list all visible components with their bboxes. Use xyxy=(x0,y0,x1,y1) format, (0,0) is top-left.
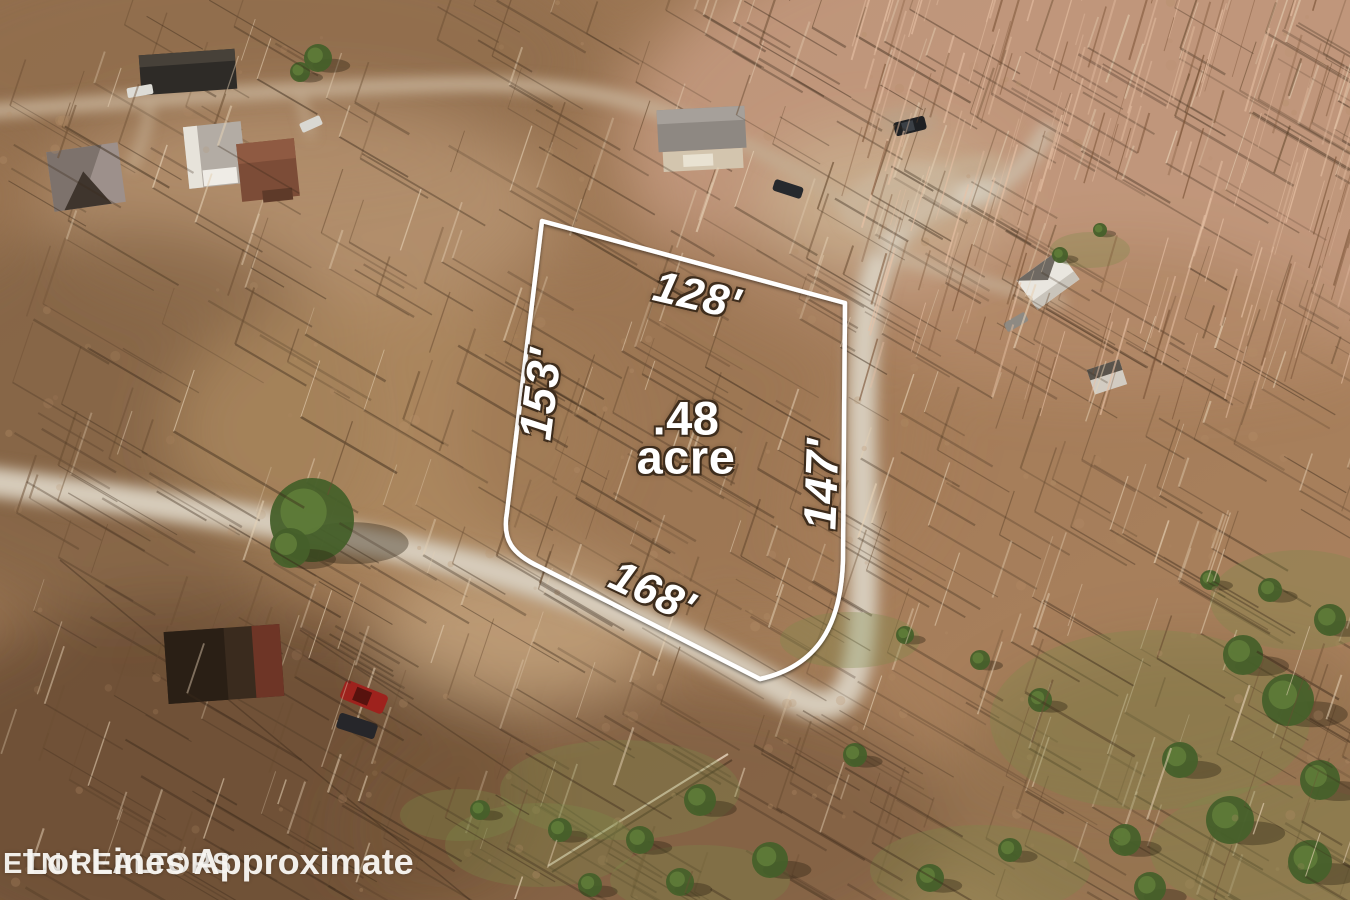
dimension-label-right: 147' xyxy=(792,437,849,531)
barn-bottom-left xyxy=(164,624,285,704)
house-red-roof xyxy=(236,138,300,205)
house-long-dark-building xyxy=(139,49,238,96)
acreage-label: .48 acre xyxy=(637,399,736,478)
acreage-unit: acre xyxy=(637,438,736,477)
house-top-center xyxy=(656,106,747,173)
watermark-disclaimer: Lot Lines Approximate xyxy=(25,841,414,883)
aerial-photo: 128' 153' 147' 168' .48 acre ETN REALTOR… xyxy=(0,0,1350,900)
dimension-label-left: 153' xyxy=(508,345,573,443)
